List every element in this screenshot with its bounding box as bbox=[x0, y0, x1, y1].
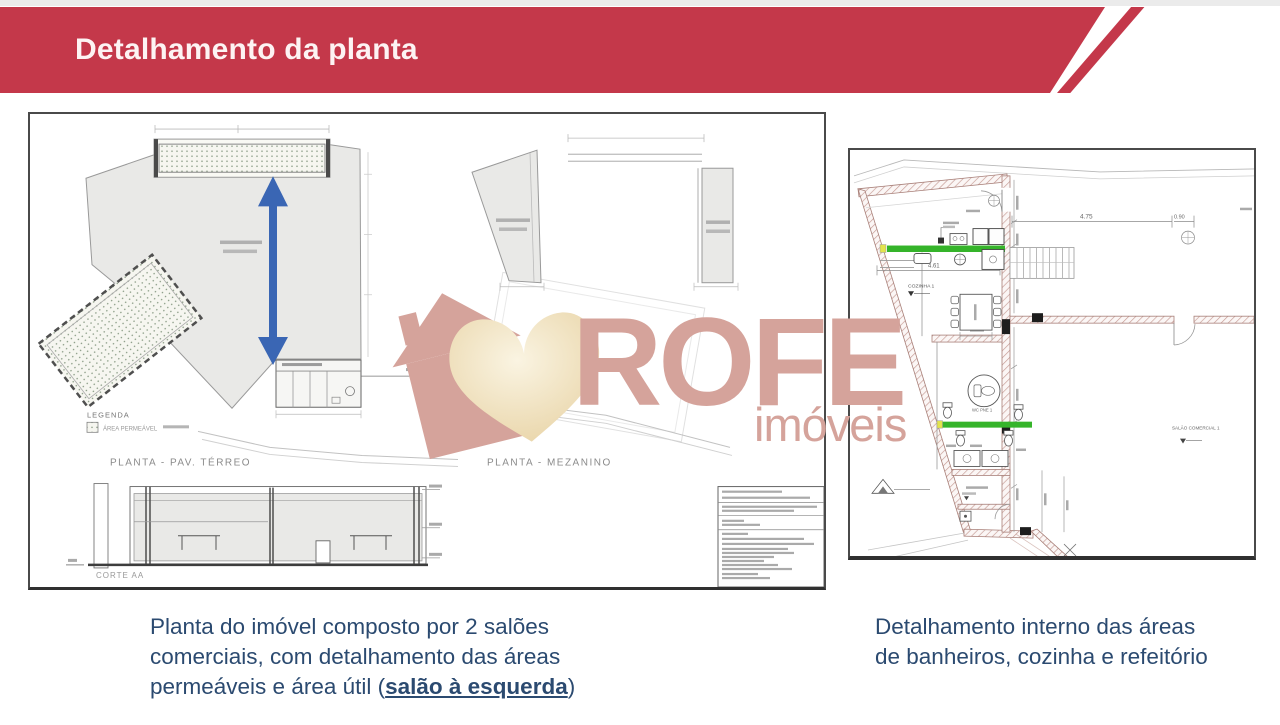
kitchen-label: COZINHA 1 bbox=[908, 283, 935, 289]
legend-title: LEGENDA bbox=[87, 410, 130, 419]
plan-terreo: LEGENDA ÁREA PERMEÁVEL PLANTA - PAV. TÉR… bbox=[39, 125, 458, 468]
legend-title-2: LEGENDA bbox=[470, 410, 513, 419]
hall-label: SALÃO COMERCIAL 1 bbox=[1172, 425, 1220, 431]
plan-mezanino-caption: PLANTA - MEZANINO bbox=[487, 457, 612, 468]
plan-mezanino: LEGENDA ÁREA PERMEÁVEL PLANTA - MEZANINO bbox=[470, 134, 738, 468]
title-block bbox=[718, 487, 824, 587]
floorplans-drawing: LEGENDA ÁREA PERMEÁVEL PLANTA - PAV. TÉR… bbox=[30, 114, 824, 587]
floorplans-panel: LEGENDA ÁREA PERMEÁVEL PLANTA - PAV. TÉR… bbox=[28, 112, 826, 590]
left-caption-highlight: salão à esquerda bbox=[385, 674, 568, 699]
ramp-triangle bbox=[872, 479, 930, 493]
doors bbox=[981, 190, 1195, 519]
interior-detail-drawing: 4.75 0.90 4.61 bbox=[850, 150, 1254, 556]
lot-boundary bbox=[854, 160, 1254, 183]
dim-kitchen-width: 4.61 bbox=[928, 263, 940, 269]
green-counter-highlight-2 bbox=[942, 422, 1032, 428]
dimensions: 4.75 0.90 4.61 bbox=[877, 180, 1252, 532]
floor-below-outline bbox=[479, 272, 704, 441]
left-caption-suffix: ) bbox=[568, 674, 576, 699]
left-caption: Planta do imóvel composto por 2 salões c… bbox=[150, 612, 620, 702]
wc-pne-label: WC PNE 1 bbox=[972, 408, 993, 413]
plan-terreo-caption: PLANTA - PAV. TÉRREO bbox=[110, 455, 251, 468]
hall-label-group: SALÃO COMERCIAL 1 bbox=[1172, 425, 1220, 444]
slide-title-banner: Detalhamento da planta bbox=[0, 7, 1105, 93]
page-title: Detalhamento da planta bbox=[75, 33, 418, 67]
dim-top-width: 4.75 bbox=[1080, 214, 1093, 221]
legend-item: ÁREA PERMEÁVEL bbox=[103, 425, 158, 432]
right-caption: Detalhamento interno das áreas de banhei… bbox=[875, 612, 1220, 672]
walls bbox=[858, 174, 1254, 556]
section-caption: CORTE AA bbox=[96, 571, 144, 580]
section-corte: CORTE AA bbox=[66, 484, 442, 580]
service-room-block bbox=[276, 360, 444, 418]
right-caption-text: Detalhamento interno das áreas de banhei… bbox=[875, 614, 1208, 669]
top-gray-strip bbox=[0, 0, 1280, 6]
dim-door-width: 0.90 bbox=[1174, 215, 1185, 221]
legend-item-2: ÁREA PERMEÁVEL bbox=[486, 425, 541, 432]
stairs bbox=[1010, 248, 1074, 279]
interior-detail-panel: 4.75 0.90 4.61 bbox=[848, 148, 1256, 560]
